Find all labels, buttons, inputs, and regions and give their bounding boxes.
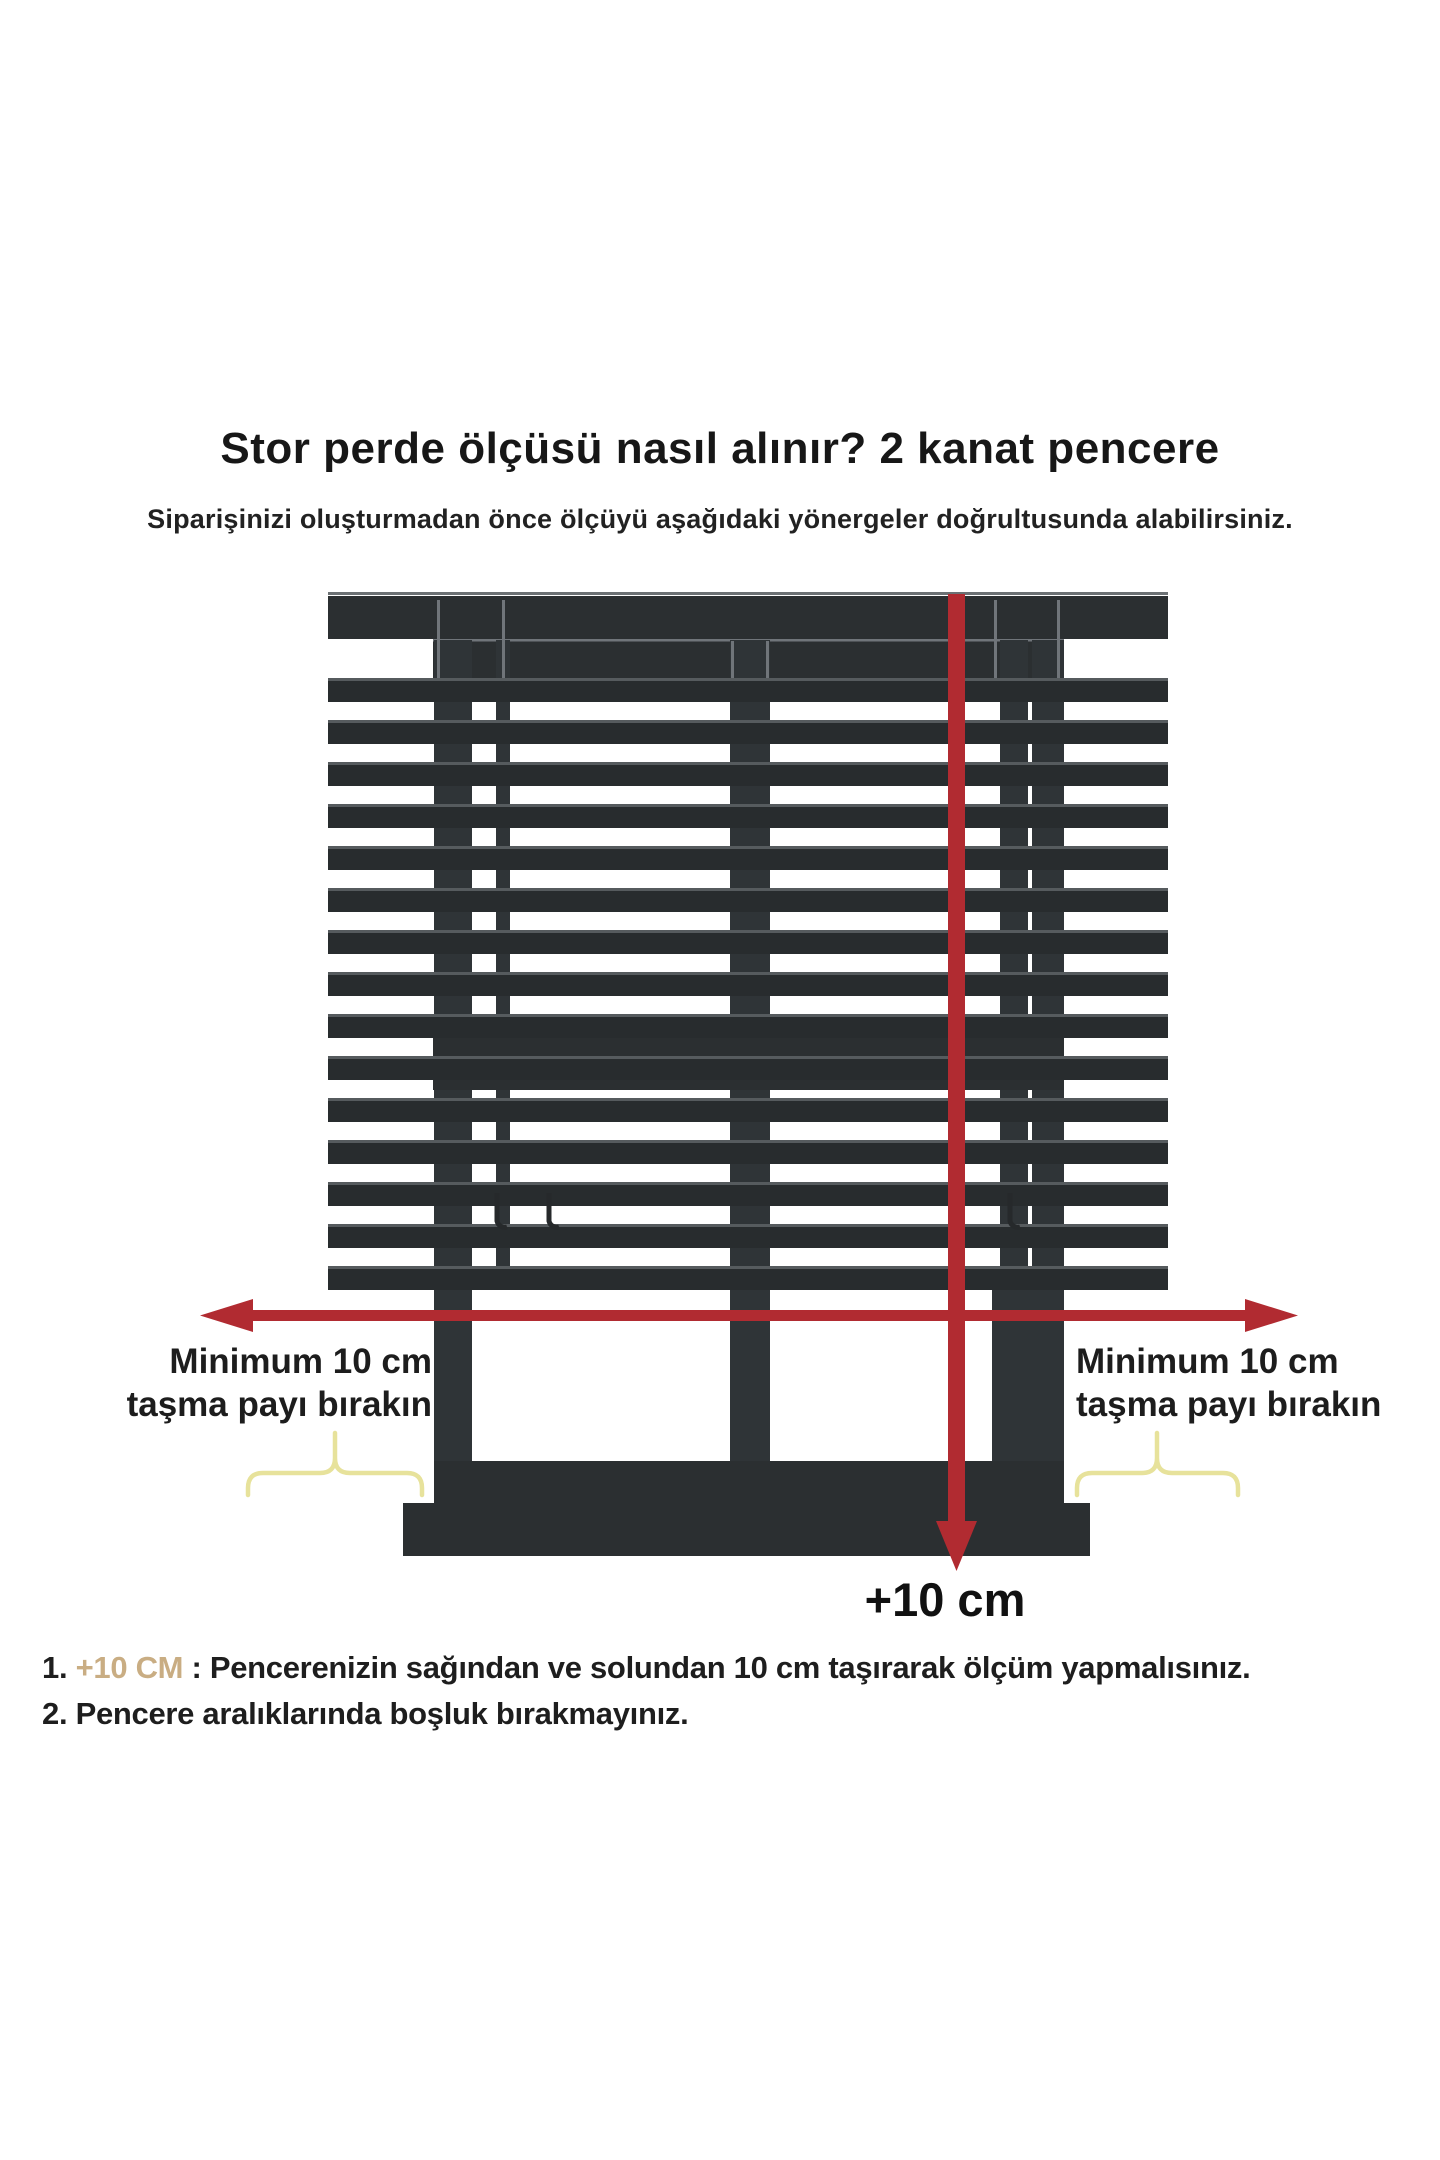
left-overhang-label: Minimum 10 cm taşma payı bırakın: [60, 1340, 432, 1426]
right-overhang-label-line2: taşma payı bırakın: [1076, 1383, 1416, 1426]
blind-headrail: [328, 596, 1168, 639]
left-overhang-label-line1: Minimum 10 cm: [60, 1340, 432, 1383]
left-overhang-label-line2: taşma payı bırakın: [60, 1383, 432, 1426]
measurement-guide-page: Stor perde ölçüsü nasıl alınır? 2 kanat …: [0, 0, 1440, 2160]
right-overhang-brace: [1077, 1433, 1238, 1495]
blind-slats: [328, 678, 1168, 1290]
instruction-2-text: Pencere aralıklarında boşluk bırakmayını…: [67, 1696, 688, 1731]
plus-10-cm-label: +10 cm: [795, 1572, 1095, 1627]
instruction-item-1: 1. +10 CM : Pencerenizin sağından ve sol…: [42, 1645, 1402, 1691]
window-blind-illustration: [0, 0, 1440, 2160]
left-overhang-brace: [248, 1433, 422, 1495]
venetian-blind: [328, 592, 1168, 1290]
instruction-1-text: : Pencerenizin sağından ve solundan 10 c…: [183, 1650, 1250, 1685]
blind-top-line: [328, 592, 1168, 595]
instruction-list: 1. +10 CM : Pencerenizin sağından ve sol…: [42, 1645, 1402, 1737]
instruction-1-number: 1.: [42, 1650, 67, 1685]
right-overhang-label-line1: Minimum 10 cm: [1076, 1340, 1416, 1383]
instruction-2-number: 2.: [42, 1696, 67, 1731]
instruction-1-highlight: +10 CM: [76, 1650, 184, 1685]
right-overhang-label: Minimum 10 cm taşma payı bırakın: [1076, 1340, 1416, 1426]
instruction-item-2: 2. Pencere aralıklarında boşluk bırakmay…: [42, 1691, 1402, 1737]
